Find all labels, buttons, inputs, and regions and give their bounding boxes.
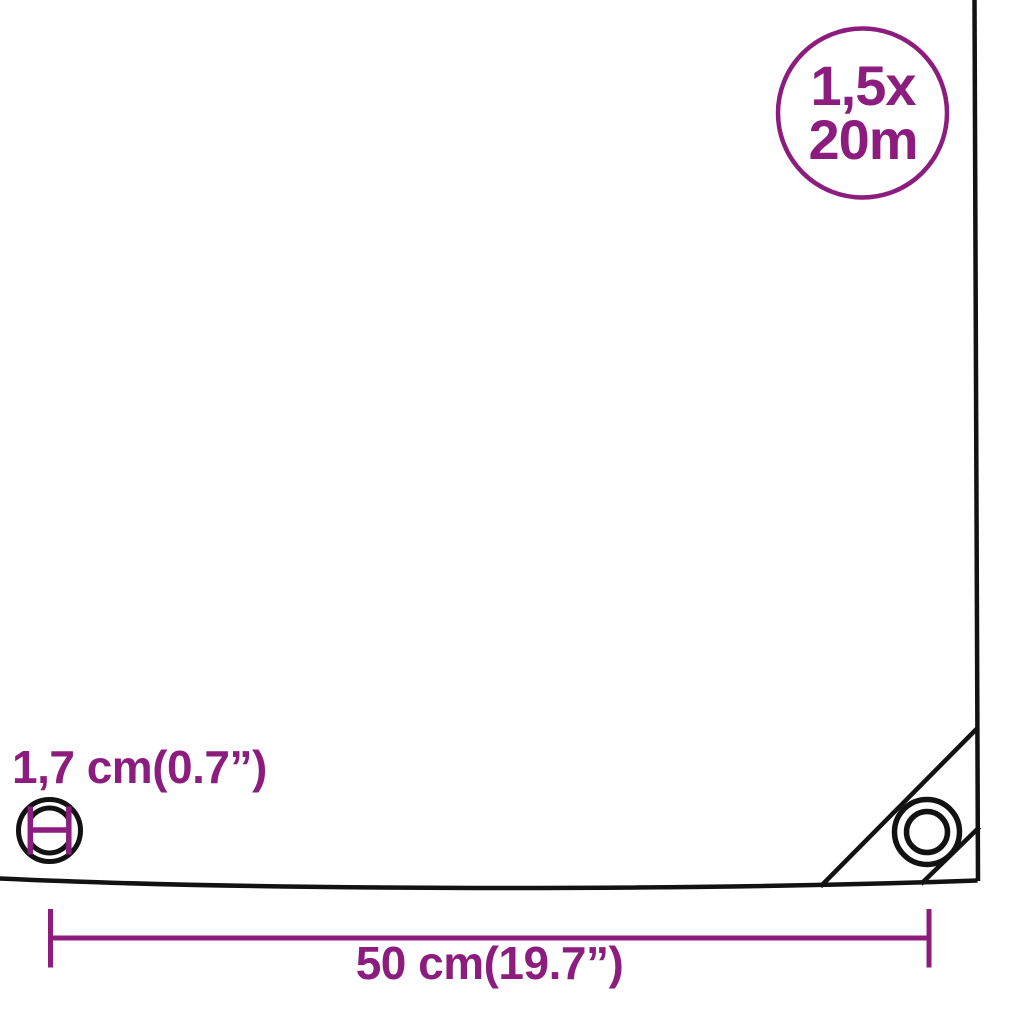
- eyelet-diameter-label: 1,7 cm(0.7”): [12, 744, 267, 790]
- page-body: { "colors": { "accent": "#8C1D7E", "line…: [0, 0, 1024, 1024]
- width-dimension-label: 50 cm(19.7”): [50, 940, 929, 986]
- size-badge-line1: 1,5x: [763, 59, 963, 113]
- grommet-inner-ring: [907, 812, 948, 853]
- corner-reinforcement: [821, 728, 980, 887]
- tarpaulin-product-diagram: 1,5x 20m 1,7 cm(0.7”) 50 cm(19.7”): [0, 0, 1024, 1024]
- sheet-right-edge-line: [975, 0, 979, 881]
- size-badge-line2: 20m: [763, 113, 963, 167]
- grommet-icon: [895, 800, 960, 865]
- sheet-bottom-edge-line: [0, 879, 978, 888]
- eyelet-icon: [19, 800, 81, 862]
- corner-fold-seam-line: [821, 728, 978, 887]
